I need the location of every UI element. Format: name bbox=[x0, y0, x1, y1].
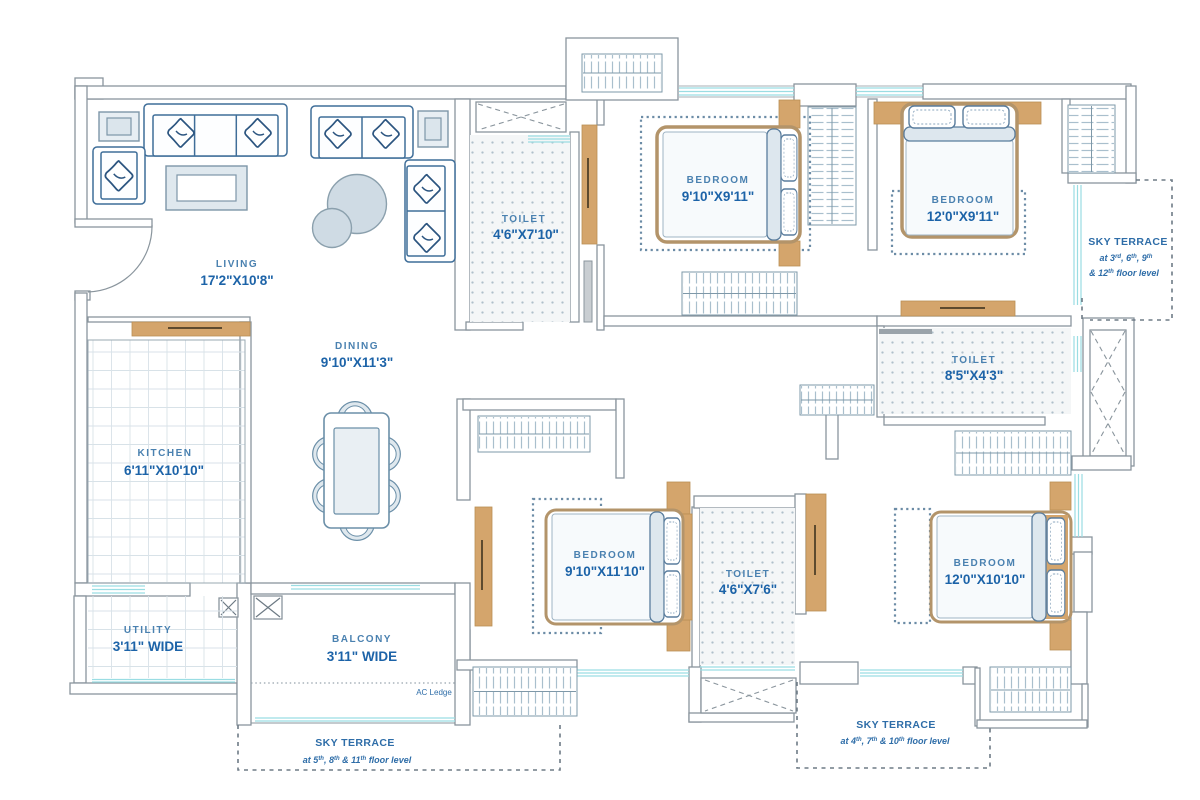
svg-text:3'11" WIDE: 3'11" WIDE bbox=[113, 639, 183, 654]
svg-text:DINING: DINING bbox=[335, 341, 379, 352]
svg-text:& 12th floor level: & 12th floor level bbox=[1089, 268, 1159, 278]
svg-text:8'5"X4'3": 8'5"X4'3" bbox=[945, 368, 1003, 383]
svg-text:BEDROOM: BEDROOM bbox=[954, 558, 1017, 569]
svg-text:UTILITY: UTILITY bbox=[124, 625, 172, 636]
svg-text:4'6"X7'6": 4'6"X7'6" bbox=[719, 582, 777, 597]
svg-text:3'11" WIDE: 3'11" WIDE bbox=[327, 649, 397, 664]
svg-text:BEDROOM: BEDROOM bbox=[932, 195, 995, 206]
svg-text:SKY TERRACE: SKY TERRACE bbox=[315, 737, 394, 749]
svg-text:TOILET: TOILET bbox=[502, 214, 546, 225]
svg-text:12'0"X10'10": 12'0"X10'10" bbox=[945, 572, 1026, 587]
svg-text:LIVING: LIVING bbox=[216, 259, 258, 270]
svg-text:17'2"X10'8": 17'2"X10'8" bbox=[200, 273, 273, 288]
svg-text:AC Ledge: AC Ledge bbox=[416, 688, 452, 697]
svg-text:4'6"X7'10": 4'6"X7'10" bbox=[493, 227, 559, 242]
svg-text:BEDROOM: BEDROOM bbox=[574, 550, 637, 561]
svg-text:KITCHEN: KITCHEN bbox=[138, 448, 193, 459]
svg-text:at 3rd, 6th, 9th: at 3rd, 6th, 9th bbox=[1100, 253, 1153, 263]
svg-text:6'11"X10'10": 6'11"X10'10" bbox=[124, 463, 204, 478]
svg-text:SKY TERRACE: SKY TERRACE bbox=[1088, 236, 1167, 248]
svg-text:BEDROOM: BEDROOM bbox=[687, 175, 750, 186]
svg-text:9'10"X9'11": 9'10"X9'11" bbox=[682, 189, 755, 204]
svg-text:12'0"X9'11": 12'0"X9'11" bbox=[927, 209, 1000, 224]
svg-text:SKY TERRACE: SKY TERRACE bbox=[856, 719, 935, 731]
svg-text:BALCONY: BALCONY bbox=[332, 634, 392, 645]
svg-text:9'10"X11'10": 9'10"X11'10" bbox=[565, 564, 645, 579]
svg-text:9'10"X11'3": 9'10"X11'3" bbox=[321, 355, 394, 370]
svg-text:TOILET: TOILET bbox=[726, 569, 770, 580]
svg-text:TOILET: TOILET bbox=[952, 355, 996, 366]
